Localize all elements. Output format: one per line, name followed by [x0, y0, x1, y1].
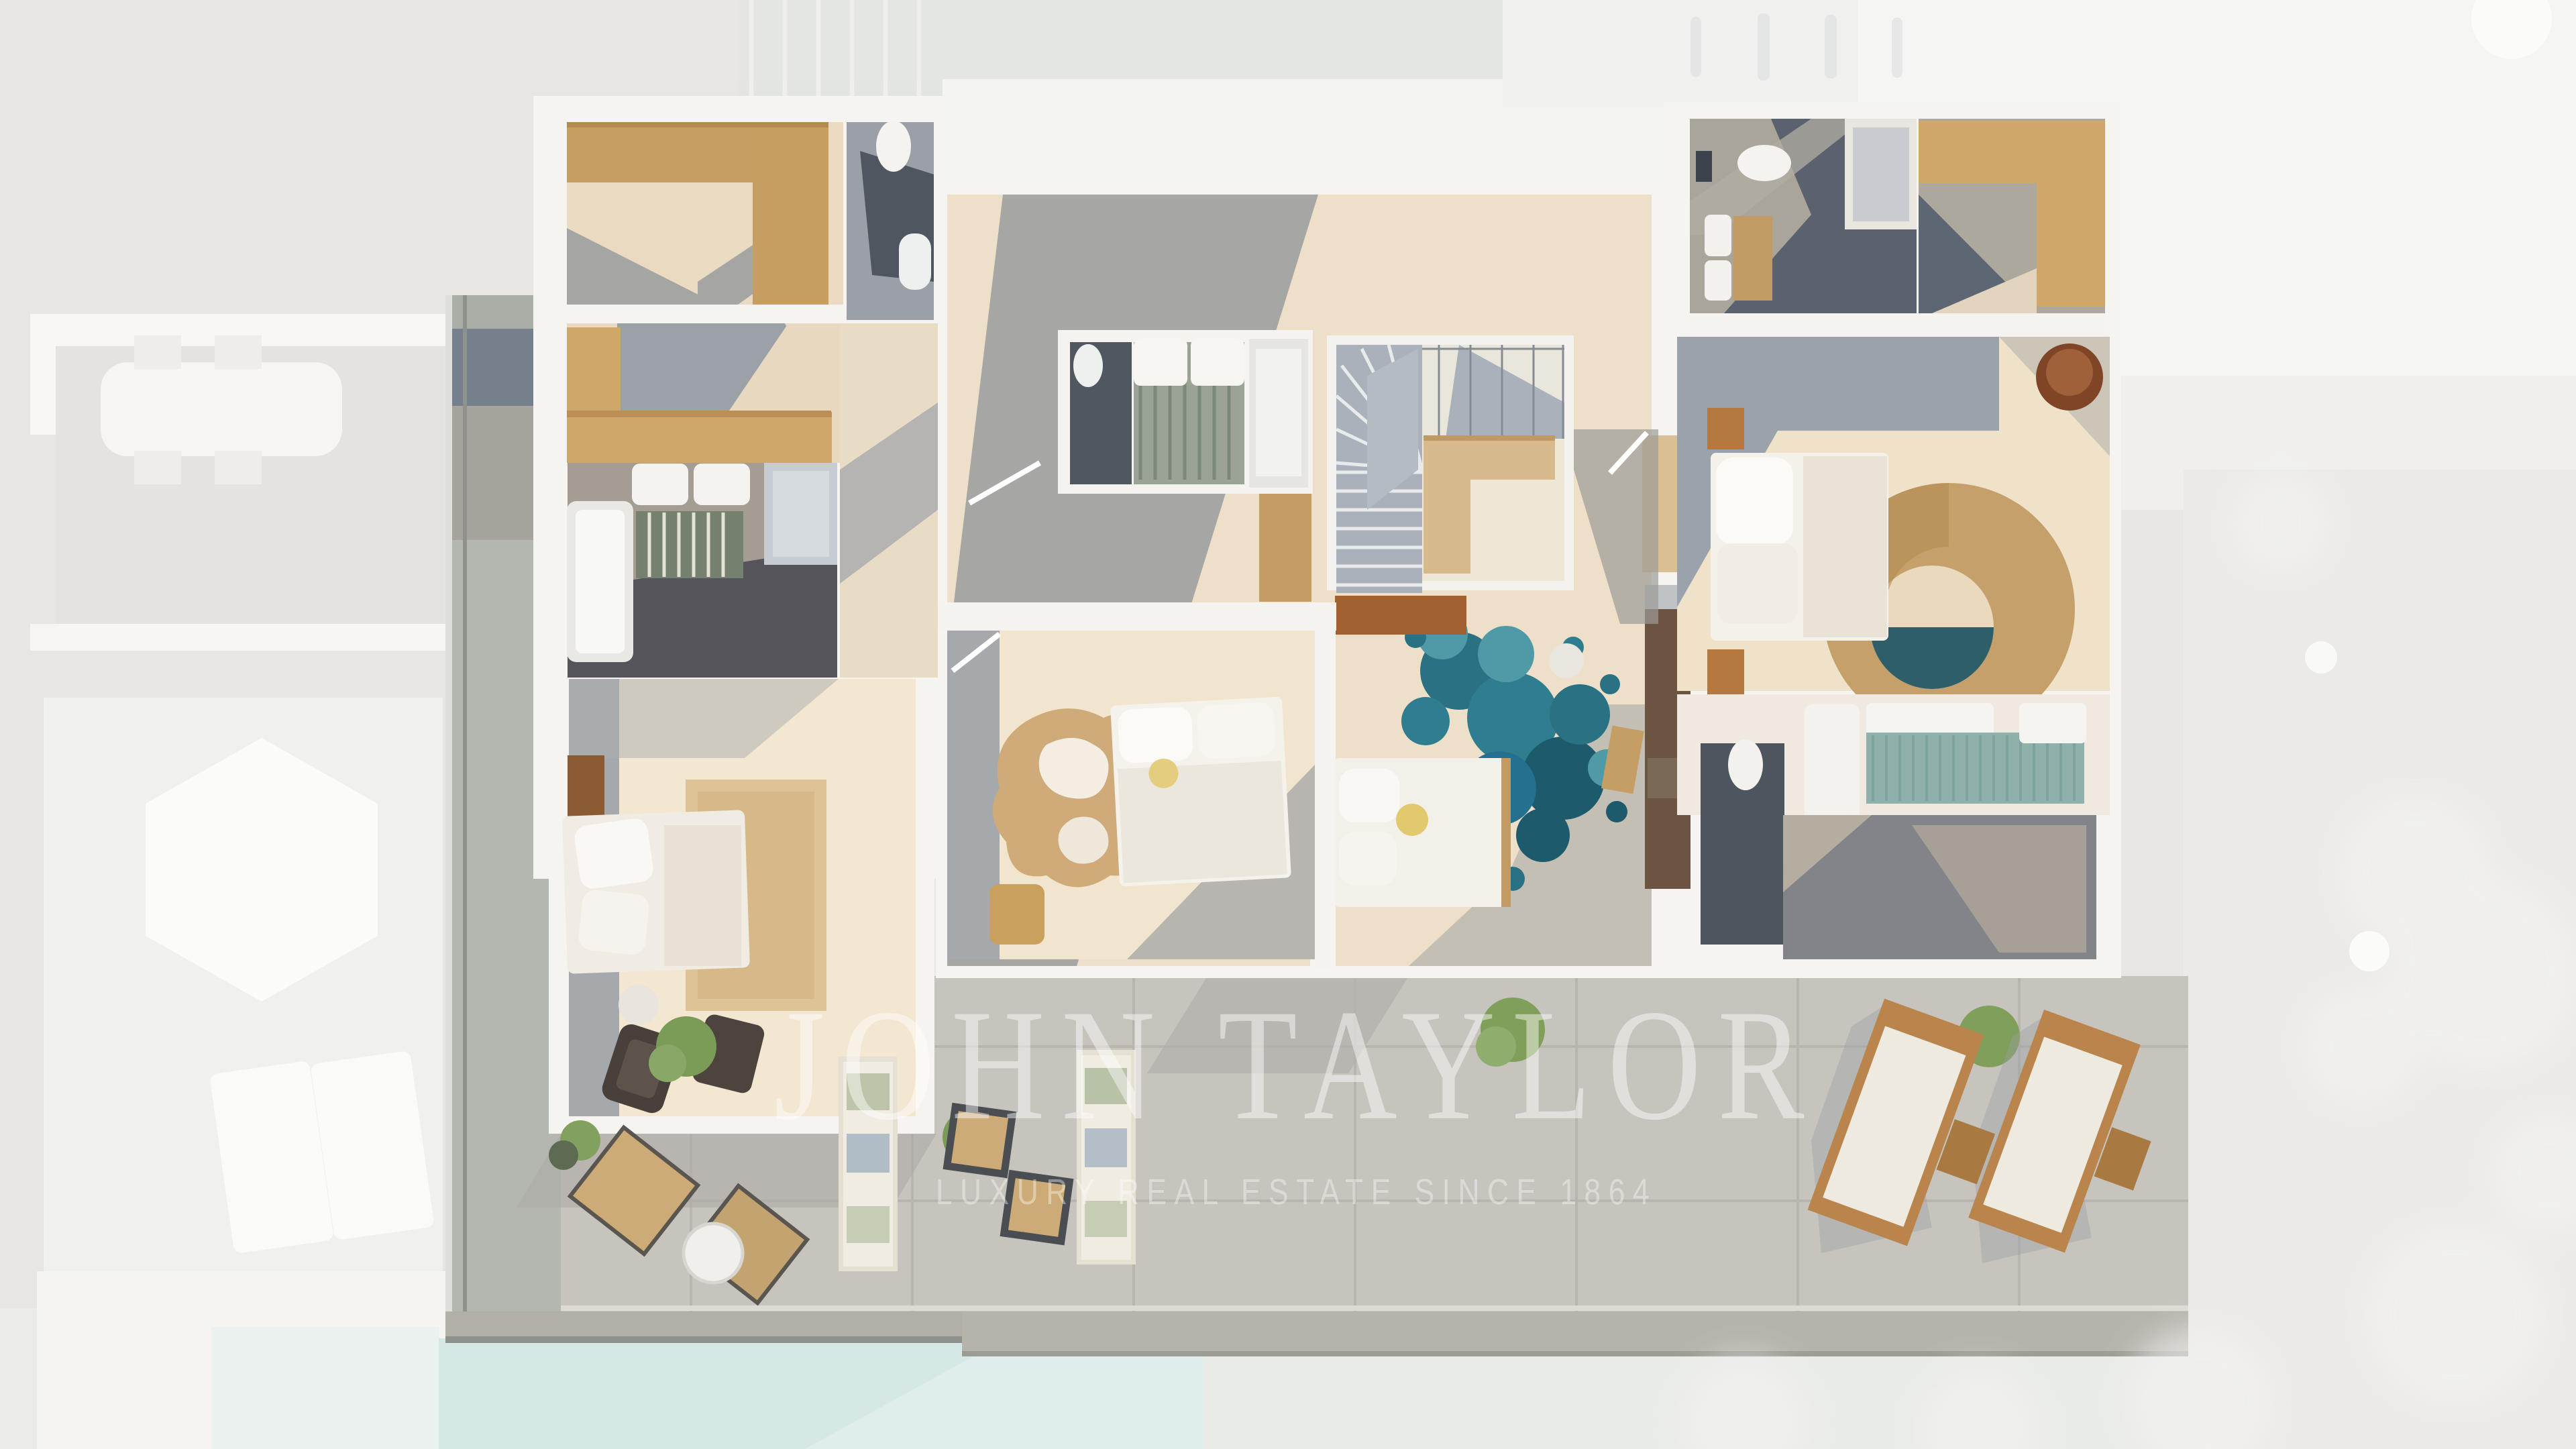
svg-text:JOHN TAYLOR: JOHN TAYLOR: [774, 977, 1821, 1153]
svg-text:LUXURY REAL ESTATE SINCE 1864: LUXURY REAL ESTATE SINCE 1864: [936, 1172, 1657, 1212]
